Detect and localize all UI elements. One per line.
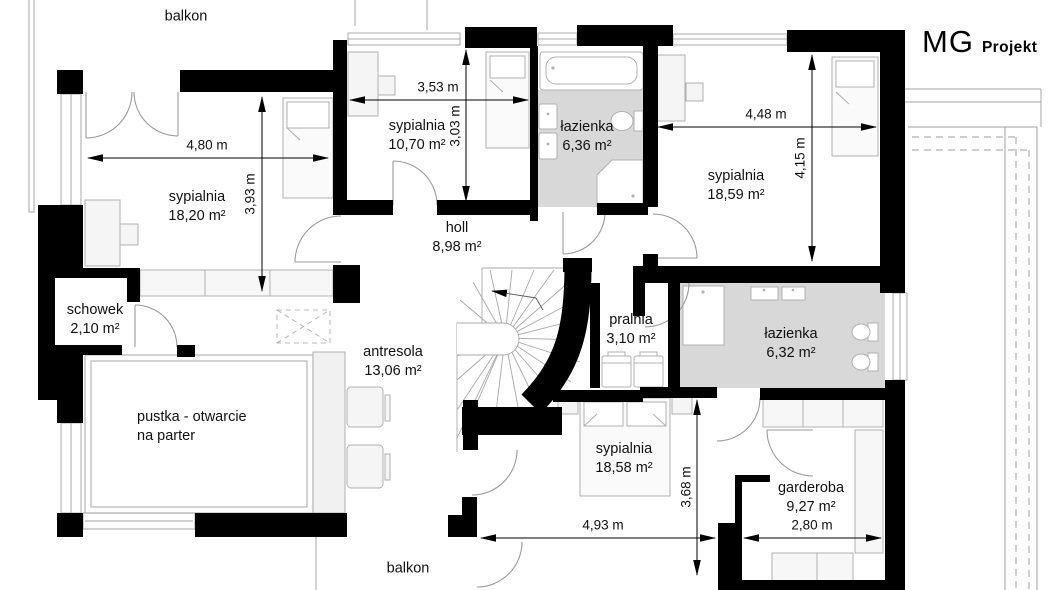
wall-segment — [577, 25, 673, 46]
wall-segment — [530, 46, 538, 221]
room-area: 18,20 m² — [168, 207, 225, 226]
room-name: balkon — [165, 7, 208, 26]
room-label-pustka: pustka - otwarcie na parter — [137, 408, 247, 445]
washing-machine-icon — [634, 352, 663, 387]
room-label-schowek: schowek 2,10 m² — [67, 301, 123, 339]
counter-icon — [313, 352, 345, 513]
wall-segment — [718, 523, 736, 590]
wall-segment — [640, 387, 717, 398]
window-icon — [893, 293, 907, 380]
window-icon — [538, 33, 577, 45]
washing-machine-icon — [602, 352, 631, 387]
toilet-icon — [852, 353, 878, 371]
wall-segment — [735, 475, 742, 590]
stair-landing — [457, 323, 519, 355]
window-icon — [61, 94, 81, 205]
curved-stair-wall — [531, 266, 578, 404]
toilet-icon — [611, 111, 643, 131]
window-icon — [348, 33, 460, 45]
dimension-label: 3,03 m — [448, 105, 463, 146]
wardrobe-icon — [772, 553, 853, 581]
brand-logo: MG Projekt — [922, 24, 1037, 60]
wall-segment — [57, 70, 83, 94]
room-name: sypialnia — [169, 188, 225, 207]
wall-segment — [880, 30, 905, 293]
balcony-railing — [29, 0, 34, 212]
wall-segment — [333, 265, 360, 303]
bed-icon — [283, 98, 333, 198]
wall-segment — [57, 400, 83, 423]
room-label-sypialnia-4: sypialnia 18,58 m² — [595, 440, 652, 478]
window-icon — [673, 34, 787, 45]
door-arc-icon — [477, 542, 522, 587]
dimension-label: 3,68 m — [679, 466, 694, 507]
door-arc-icon — [653, 214, 697, 258]
dimension-label: 3,93 m — [243, 173, 258, 214]
room-area: 3,10 m² — [606, 330, 655, 349]
wall-segment — [38, 345, 122, 355]
dimension-label: 4,15 m — [793, 137, 808, 178]
room-area: 6,36 m² — [562, 137, 611, 156]
sink-icon — [539, 104, 557, 129]
room-area: 18,59 m² — [707, 186, 764, 205]
room-label-antresola: antresola 13,06 m² — [363, 343, 423, 381]
brand-logo-projekt: Projekt — [982, 39, 1037, 57]
room-name: sypialnia — [596, 440, 652, 459]
pustka-line2: na parter — [137, 427, 247, 446]
wall-segment — [730, 580, 905, 590]
floor-plan-drawing — [0, 0, 1060, 590]
desk-icon — [653, 55, 703, 121]
dimension-label: 3,53 m — [417, 80, 458, 95]
room-area: 9,27 m² — [786, 498, 835, 517]
room-label-lazienka-2: łazienka 6,32 m² — [764, 325, 817, 363]
dimension-label: 4,80 m — [186, 138, 227, 153]
room-name: holl — [446, 219, 469, 238]
room-label-pralnia: pralnia 3,10 m² — [606, 311, 655, 349]
wardrobe-icon — [140, 270, 333, 296]
room-area: 18,58 m² — [595, 459, 652, 478]
room-area: 13,06 m² — [364, 362, 421, 381]
sink-icon — [782, 287, 805, 300]
wall-segment — [347, 200, 393, 215]
wall-segment — [643, 254, 658, 266]
wall-segment — [553, 390, 643, 402]
room-label-sypialnia-3: sypialnia 18,59 m² — [707, 167, 764, 205]
toilet-icon — [852, 323, 878, 341]
room-area: 10,70 m² — [388, 136, 445, 155]
wardrobe-icon — [855, 430, 883, 553]
room-label-balkon-bottom: balkon — [387, 559, 430, 578]
wall-segment — [668, 283, 680, 388]
desk-icon — [85, 200, 138, 266]
door-arc-icon — [767, 430, 813, 476]
room-label-garderoba: garderoba 9,27 m² — [778, 479, 844, 517]
wall-segment — [38, 355, 83, 400]
room-label-balkon-top: balkon — [165, 7, 208, 26]
wall-segment — [127, 268, 140, 302]
room-name: sypialnia — [708, 167, 764, 186]
room-label-sypialnia-1: sypialnia 18,20 m² — [168, 188, 225, 226]
bathtub-icon — [540, 52, 643, 90]
room-area: 8,98 m² — [432, 238, 481, 257]
wall-segment — [180, 70, 335, 92]
sink-icon — [539, 133, 557, 159]
wall-segment — [885, 380, 905, 590]
wall-segment — [462, 497, 477, 517]
wall-segment — [633, 266, 880, 283]
wall-segment — [597, 203, 648, 215]
door-arc-icon — [717, 398, 760, 441]
door-arc-icon — [563, 212, 605, 254]
brand-logo-mg: MG — [922, 24, 974, 60]
roof-outline — [908, 127, 1037, 590]
wall-segment — [463, 400, 478, 450]
door-arc-icon — [134, 92, 178, 136]
room-label-sypialnia-2: sypialnia 10,70 m² — [388, 117, 445, 155]
wall-segment — [195, 513, 347, 537]
room-label-lazienka-1: łazienka 6,36 m² — [560, 118, 613, 156]
stair-direction-arrow-icon — [492, 291, 543, 310]
nightstand-icon — [672, 396, 692, 414]
room-area: 2,10 m² — [70, 320, 119, 339]
room-name: antresola — [363, 343, 423, 362]
wall-segment — [38, 278, 55, 348]
wall-segment — [333, 40, 347, 215]
wall-segment — [448, 515, 477, 537]
door-arc-icon — [472, 450, 517, 495]
wall-segment — [465, 27, 537, 48]
wall-segment — [437, 200, 530, 215]
pustka-line1: pustka - otwarcie — [137, 408, 247, 427]
room-name: łazienka — [560, 118, 613, 137]
wall-segment — [760, 388, 885, 400]
dimension-label: 2,80 m — [791, 518, 832, 533]
dimension-label: 4,48 m — [745, 107, 786, 122]
room-name: sypialnia — [389, 117, 445, 136]
wall-segment — [57, 513, 83, 537]
room-name: balkon — [387, 559, 430, 578]
wall-segment — [177, 345, 195, 357]
room-name: łazienka — [764, 325, 817, 344]
wall-segment — [643, 46, 658, 207]
shower-icon — [683, 286, 724, 345]
dimension-label: 4,93 m — [582, 518, 623, 533]
desk-icon — [348, 52, 395, 116]
room-name: pralnia — [609, 311, 653, 330]
wall-segment — [590, 283, 600, 388]
bed-icon — [832, 57, 878, 156]
skylight-marker-icon — [277, 310, 330, 343]
room-name: schowek — [67, 301, 123, 320]
chair-icon — [347, 445, 390, 488]
window-icon — [61, 423, 81, 513]
wall-segment — [735, 475, 770, 482]
door-arc-icon — [295, 216, 341, 262]
wall-segment — [38, 268, 138, 278]
wall-segment — [38, 205, 83, 275]
door-arc-icon — [86, 92, 132, 138]
floor-plan: balkon sypialnia 18,20 m² sypialnia 10,7… — [0, 0, 1060, 590]
room-area: 6,32 m² — [766, 344, 815, 363]
room-label-holl: holl 8,98 m² — [432, 219, 481, 257]
chair-icon — [347, 387, 390, 427]
room-name: garderoba — [778, 479, 844, 498]
door-arc-icon — [135, 305, 177, 347]
sink-icon — [751, 287, 778, 300]
door-arc-icon — [393, 161, 437, 205]
